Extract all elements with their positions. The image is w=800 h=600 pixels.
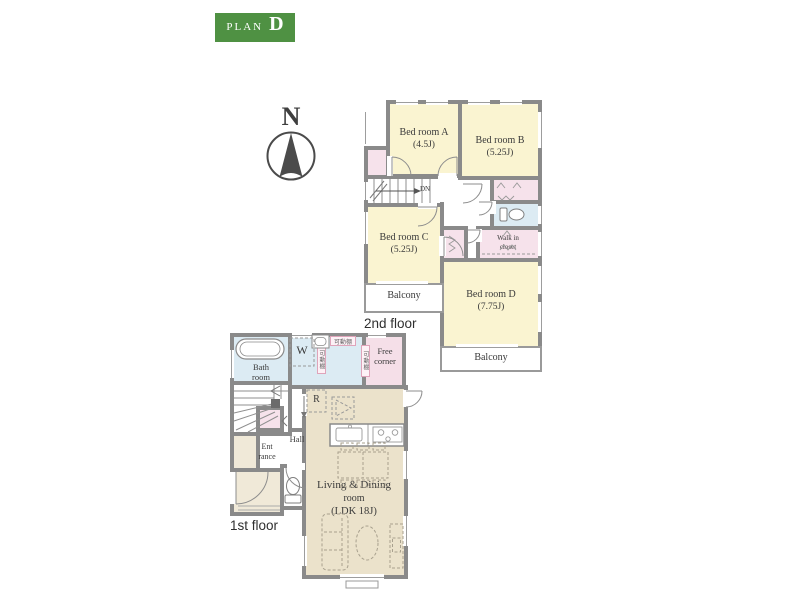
bath-line2: room (230, 372, 292, 382)
doorway-bedroom-c (418, 202, 437, 209)
bedroom-b-size: (5.25J) (458, 147, 542, 159)
movable-shelf-left: 可動棚 (317, 346, 326, 374)
living-line3: (LDK 18J) (302, 505, 406, 519)
bedroom-c-label: Bed room C (5.25J) (364, 231, 444, 256)
window-washroom (292, 332, 312, 338)
window-bed-c-balcony (376, 281, 428, 287)
living-line2: room (302, 492, 406, 505)
wic-line1: Walk in (476, 234, 540, 243)
washer-label: W (292, 343, 312, 359)
hall-label: Hall (283, 434, 311, 445)
entrance-line1: Ent (246, 442, 288, 452)
floor-2-caption: 2nd floor (364, 316, 417, 331)
living-dining-label: Living & Dining room (LDK 18J) (302, 478, 406, 519)
closet-1f (256, 406, 284, 432)
window-bed-d-balcony (456, 344, 518, 350)
bedroom-d-size: (7.75J) (440, 301, 542, 313)
window-ldk-right-1 (403, 451, 409, 479)
doorway-front-door (229, 472, 236, 504)
entrance-label: Ent rance (246, 442, 288, 461)
terrace-step (346, 581, 378, 588)
window-bed-a-1 (396, 99, 418, 105)
free-line2: corner (364, 356, 406, 366)
plan-badge-prefix: PLAN (226, 13, 263, 33)
compass-rose-icon (268, 133, 315, 180)
bedroom-b-label: Bed room B (5.25J) (458, 134, 542, 159)
stairs-dn-label: DN (420, 185, 436, 194)
bedroom-d-name: Bed room D (440, 288, 542, 301)
window-free-corner (368, 332, 386, 338)
bedroom-a-name: Bed room A (386, 126, 462, 139)
doorway-bedroom-a (438, 173, 457, 180)
doorway-stairs-2f (440, 180, 445, 202)
window-ldk-bottom (340, 574, 384, 580)
window-ldk-left (301, 536, 307, 566)
entrance-line2: rance (246, 452, 288, 462)
bedroom-b-name: Bed room B (458, 134, 542, 147)
movable-shelf-top: 可動棚 (330, 336, 356, 346)
doorway-bedroom-b (457, 183, 464, 203)
living-line1: Living & Dining (302, 478, 406, 492)
compass-north-label: N (276, 102, 306, 132)
window-bed-b-1 (468, 99, 490, 105)
bedroom-d-label: Bed room D (7.75J) (440, 288, 542, 313)
window-bed-b-2 (500, 99, 522, 105)
plan-badge: PLAN D (215, 13, 295, 42)
free-corner-label: Free corner (364, 346, 406, 366)
plan-badge-letter: D (269, 13, 283, 36)
window-ldk-right-2 (403, 516, 409, 546)
doorway-toilet-1f (287, 463, 305, 470)
window-bed-a-2 (426, 99, 448, 105)
window-toilet-2f (538, 206, 544, 224)
doorway-kitchen-side (403, 390, 409, 407)
wic-line2: closet (476, 243, 540, 252)
bedroom-c-name: Bed room C (364, 231, 444, 244)
floor-1-caption: 1st floor (230, 518, 278, 533)
doorway-toilet-2f (489, 201, 496, 214)
balcony-left-label: Balcony (364, 289, 444, 302)
floorplan-page: { "badge": { "prefix": "PLAN", "letter":… (0, 0, 800, 600)
free-line1: Free (364, 346, 406, 356)
entrance-porch (230, 468, 284, 516)
fridge-label: R (307, 393, 326, 406)
window-stairs-2f (362, 182, 368, 200)
bedroom-a-label: Bed room A (4.5J) (386, 126, 462, 151)
window-bed-a-left (362, 112, 368, 144)
bathroom-label: Bath room (230, 362, 292, 382)
bedroom-c-size: (5.25J) (364, 244, 444, 256)
doorway-closet-a (387, 156, 393, 176)
walk-in-closet-label: Walk in closet (476, 234, 540, 252)
balcony-bottom-label: Balcony (440, 351, 542, 364)
bath-line1: Bath (230, 362, 292, 372)
bedroom-a-size: (4.5J) (386, 139, 462, 151)
